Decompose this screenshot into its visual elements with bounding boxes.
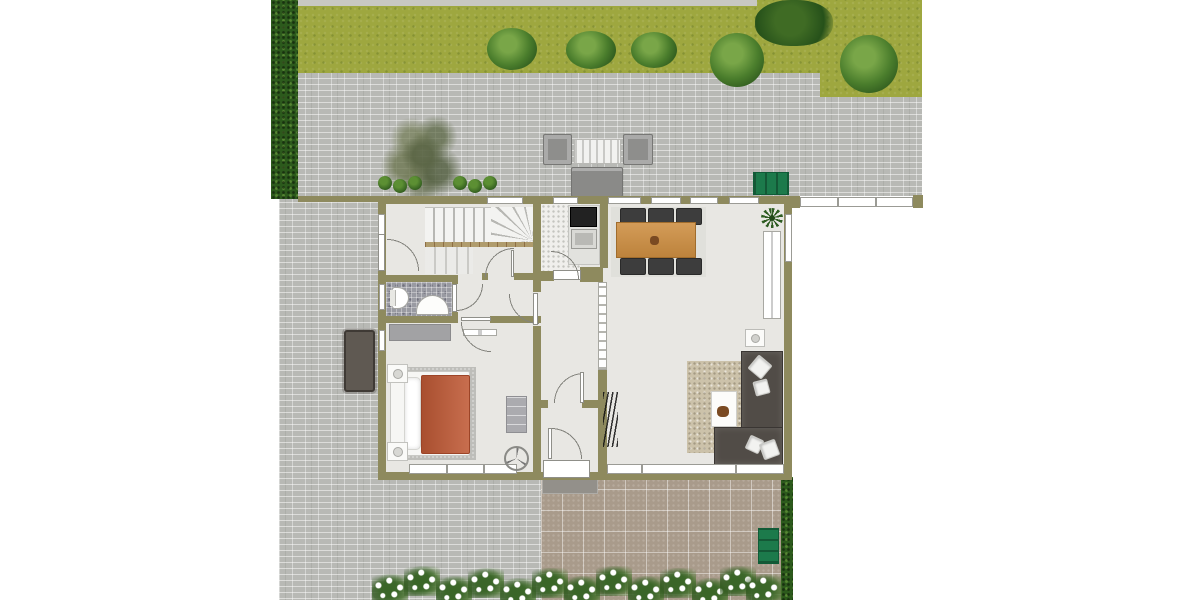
wall-kitchen-east-chunk	[580, 267, 603, 282]
window-living-north-1	[608, 197, 641, 204]
shrub-5	[468, 179, 482, 193]
window-living-north-2	[651, 197, 681, 204]
fence-mullion-2	[875, 197, 877, 207]
dining-chair-5	[648, 258, 674, 275]
flower-cluster-3	[436, 576, 472, 600]
window-hall-west	[378, 214, 385, 235]
front-door-threshold	[543, 460, 590, 478]
floor-plan	[0, 0, 1200, 600]
stairhall-door-swing	[484, 247, 514, 277]
flower-cluster-9	[628, 576, 664, 600]
table-centerpiece	[650, 236, 659, 245]
hedge-southeast	[781, 477, 793, 600]
shrub-4	[453, 176, 467, 190]
gravel-edge-strip	[298, 0, 757, 6]
large-bush	[755, 0, 833, 46]
bush-3	[631, 32, 677, 68]
dining-chair-6	[676, 258, 702, 275]
front-door-leaf	[548, 428, 552, 459]
flower-cluster-10	[660, 568, 696, 598]
ceiling-fan-symbol	[504, 446, 529, 471]
kitchen-sink	[571, 229, 597, 249]
side-door-leaf	[378, 234, 385, 271]
bathroom-door-leaf	[452, 284, 457, 312]
bedroom-dresser	[506, 396, 527, 433]
garden-wall-west	[298, 196, 378, 202]
flower-cluster-6	[532, 568, 568, 598]
window-living-north-4	[729, 197, 759, 204]
side-door-swing	[387, 238, 420, 271]
nightstand-south	[387, 442, 408, 461]
shrub-3	[408, 176, 422, 190]
garden-bench-north	[753, 172, 789, 195]
bed-duvet	[421, 375, 470, 454]
wall-core-east-upper	[600, 204, 608, 268]
window-stairhall-north	[487, 197, 523, 204]
mullion-living-1	[641, 464, 643, 474]
terrace-table-west	[344, 330, 375, 392]
mullion-bed-2	[483, 464, 485, 474]
flower-cluster-1	[372, 574, 408, 600]
window-kitchen-north	[553, 197, 578, 204]
window-living-south	[607, 464, 784, 474]
hedge-west	[271, 0, 298, 199]
wall-core-west	[533, 204, 541, 472]
mullion-bed-1	[446, 464, 448, 474]
patio-sofa	[571, 167, 623, 197]
hall-door-leaf	[580, 372, 584, 403]
flower-cluster-13	[746, 574, 782, 600]
bush-1	[487, 28, 537, 70]
bathroom-north-wall	[386, 275, 452, 282]
corridor-door-leaf	[533, 293, 538, 325]
shrub-6	[483, 176, 497, 190]
flower-cluster-7	[564, 576, 600, 600]
flower-cluster-4	[468, 568, 504, 598]
bedroom-wardrobe	[389, 324, 451, 341]
stair-winders	[491, 207, 534, 242]
patio-chair-right	[623, 134, 653, 165]
bathroom-door-swing	[456, 284, 484, 312]
shrub-2	[393, 179, 407, 193]
fence-east	[800, 197, 913, 207]
patio-chair-left	[543, 134, 572, 165]
living-radiator	[763, 231, 781, 319]
garden-bench-south	[758, 528, 779, 564]
fence-post-west	[792, 196, 800, 208]
window-bathroom-west	[379, 284, 385, 310]
stairhall-door-leaf	[511, 250, 514, 277]
bush-2	[566, 31, 616, 69]
window-bedroom-west	[379, 330, 385, 351]
flower-cluster-5	[500, 578, 536, 600]
mullion-living-2	[735, 464, 737, 474]
cooktop	[570, 207, 597, 227]
bedroom-door-swing	[460, 322, 491, 353]
window-bedroom-south	[409, 464, 517, 474]
bedroom-door-leaf	[461, 317, 491, 321]
coffee-table-decor	[717, 406, 729, 417]
stair-lower-flight	[425, 247, 473, 274]
bush-5	[840, 35, 898, 93]
window-living-east	[785, 214, 792, 262]
kitchen-door-swing	[551, 250, 580, 279]
stair-upper-flight	[425, 207, 491, 242]
flower-cluster-8	[596, 566, 632, 596]
potted-plant	[761, 208, 783, 228]
fence-post-east	[913, 195, 923, 208]
patio-table	[574, 139, 621, 164]
bed-pillows	[404, 377, 421, 450]
window-living-north-3	[690, 197, 718, 204]
coat-rack	[603, 392, 618, 447]
side-table	[745, 329, 765, 347]
dining-chair-4	[620, 258, 646, 275]
nightstand-north	[387, 364, 408, 383]
flower-cluster-2	[404, 566, 440, 596]
bathroom-south-wall	[386, 316, 452, 323]
front-door-swing	[551, 427, 583, 459]
fence-mullion-1	[837, 197, 839, 207]
shrub-1	[378, 176, 392, 190]
bush-4	[710, 33, 764, 87]
living-passage-opening	[598, 282, 607, 370]
